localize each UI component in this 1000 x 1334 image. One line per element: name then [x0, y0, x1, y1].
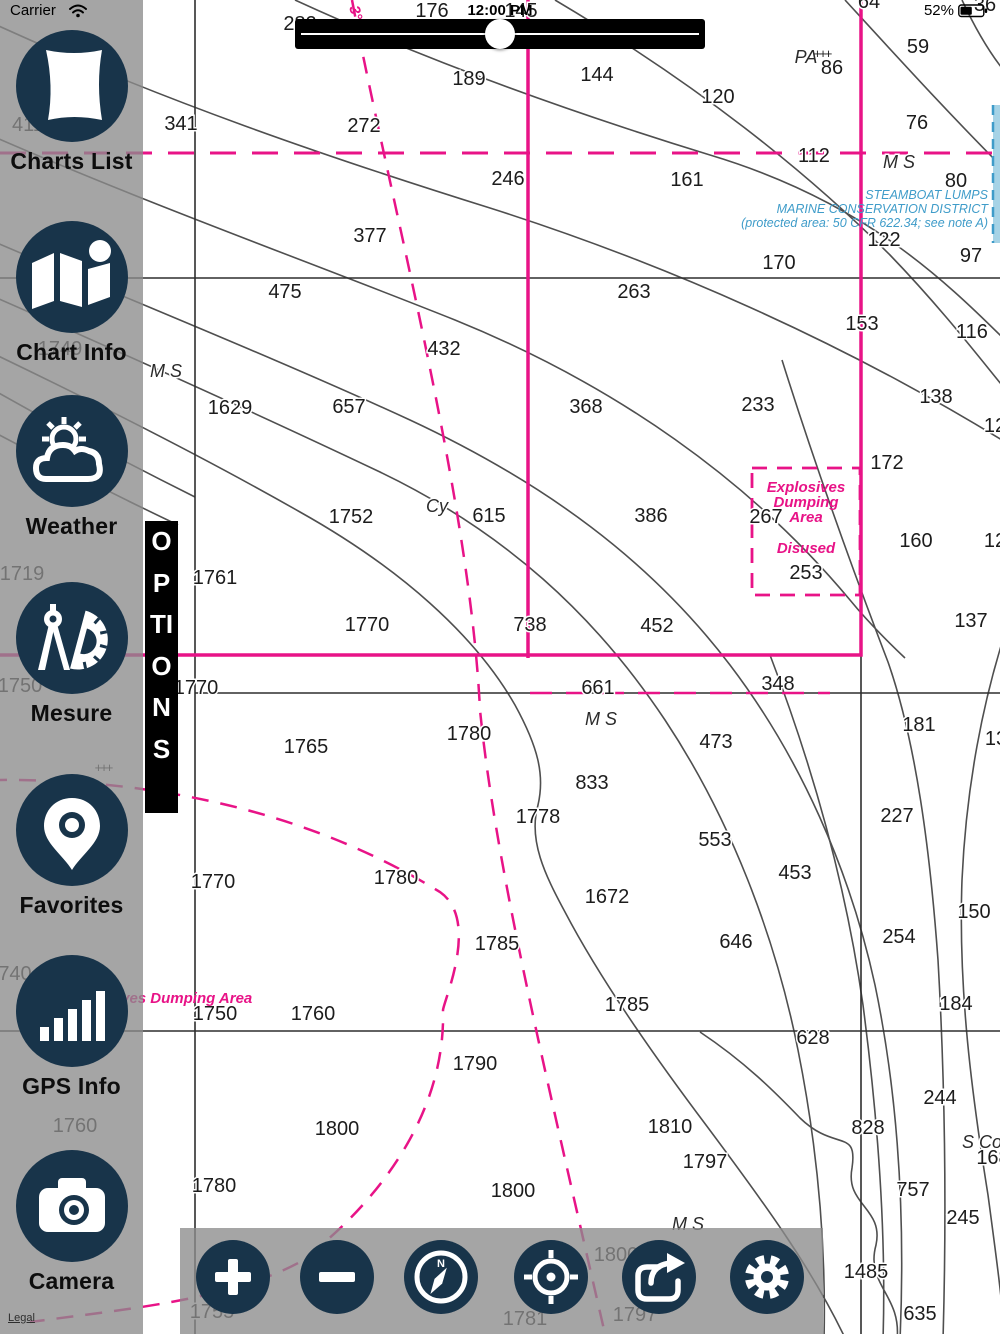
- svg-text:432: 432: [427, 338, 460, 360]
- sidebar-item-label: GPS Info: [0, 1073, 143, 1100]
- svg-text:615: 615: [472, 505, 505, 527]
- svg-text:Area: Area: [788, 509, 822, 526]
- sidebar-item-label: Chart Info: [0, 339, 143, 366]
- share-arrow-icon: [622, 1240, 696, 1314]
- svg-text:59: 59: [907, 36, 929, 58]
- camera-button[interactable]: [16, 1150, 128, 1262]
- svg-text:(protected area: 50 CFR 622.34: (protected area: 50 CFR 622.34; see note…: [741, 216, 988, 230]
- svg-text:757: 757: [896, 1179, 929, 1201]
- svg-text:144: 144: [580, 64, 613, 86]
- status-bar: Carrier 12:00 PM 52%: [0, 0, 1000, 22]
- svg-text:Disused: Disused: [777, 540, 836, 557]
- svg-text:377: 377: [353, 225, 386, 247]
- svg-text:STEAMBOAT LUMPS: STEAMBOAT LUMPS: [865, 188, 988, 202]
- slider-knob[interactable]: [485, 19, 515, 49]
- sidebar-item-gps-info[interactable]: GPS Info: [0, 955, 143, 1100]
- sidebar-item-chart-info[interactable]: Chart Info: [0, 221, 143, 366]
- svg-text:MARINE CONSERVATION DISTRICT: MARINE CONSERVATION DISTRICT: [777, 202, 990, 216]
- svg-text:1790: 1790: [453, 1053, 498, 1075]
- battery-icon: [958, 4, 988, 18]
- share-button[interactable]: [622, 1240, 696, 1314]
- svg-text:628: 628: [796, 1027, 829, 1049]
- weather-button[interactable]: [16, 395, 128, 507]
- svg-text:181: 181: [902, 714, 935, 736]
- svg-text:76: 76: [906, 112, 928, 134]
- mesure-button[interactable]: [16, 582, 128, 694]
- svg-text:12: 12: [984, 530, 1000, 552]
- sidebar-item-label: Camera: [0, 1268, 143, 1295]
- chart-scroll-icon: [16, 30, 128, 142]
- svg-text:150: 150: [957, 901, 990, 923]
- svg-text:738: 738: [513, 614, 546, 636]
- target-icon: [514, 1240, 588, 1314]
- zoom-out-button[interactable]: [300, 1240, 374, 1314]
- svg-text:122: 122: [867, 229, 900, 251]
- sidebar-item-favorites[interactable]: Favorites: [0, 774, 143, 919]
- svg-text:263: 263: [617, 281, 650, 303]
- sidebar-item-charts-list[interactable]: Charts List: [0, 30, 143, 175]
- plus-icon: [196, 1240, 270, 1314]
- svg-text:Cy: Cy: [426, 496, 449, 516]
- svg-text:1797: 1797: [683, 1151, 728, 1173]
- svg-text:661: 661: [581, 677, 614, 699]
- svg-text:1778: 1778: [516, 806, 561, 828]
- gps-info-button[interactable]: [16, 955, 128, 1067]
- svg-text:137: 137: [954, 610, 987, 632]
- svg-text:553: 553: [698, 829, 731, 851]
- svg-text:1761: 1761: [193, 567, 238, 589]
- svg-text:348: 348: [761, 673, 794, 695]
- svg-text:112: 112: [798, 145, 830, 167]
- svg-text:M S: M S: [150, 361, 182, 381]
- svg-text:341: 341: [164, 113, 197, 135]
- compass-protractor-icon: [16, 582, 128, 694]
- chart-overlay-slider[interactable]: [295, 19, 705, 49]
- locate-button[interactable]: [514, 1240, 588, 1314]
- sidebar-item-label: Mesure: [0, 700, 143, 727]
- signal-bars-icon: [16, 955, 128, 1067]
- svg-text:646: 646: [719, 931, 752, 953]
- svg-text:161: 161: [670, 169, 703, 191]
- svg-text:1780: 1780: [192, 1175, 237, 1197]
- svg-text:M S: M S: [883, 152, 915, 172]
- svg-text:1760: 1760: [291, 1003, 336, 1025]
- svg-text:120: 120: [701, 86, 734, 108]
- svg-text:386: 386: [634, 505, 667, 527]
- camera-icon: [16, 1150, 128, 1262]
- sidebar-item-mesure[interactable]: Mesure: [0, 582, 143, 727]
- svg-text:116: 116: [956, 321, 988, 343]
- legal-link[interactable]: Legal: [8, 1312, 35, 1324]
- svg-text:1770: 1770: [191, 871, 236, 893]
- svg-text:657: 657: [332, 396, 365, 418]
- svg-text:475: 475: [268, 281, 301, 303]
- svg-text:833: 833: [575, 772, 608, 794]
- svg-text:1770: 1770: [345, 614, 390, 636]
- svg-text:1785: 1785: [605, 994, 650, 1016]
- svg-text:828: 828: [851, 1117, 884, 1139]
- clock-label: 12:00 PM: [0, 2, 1000, 19]
- svg-text:1752: 1752: [329, 506, 374, 528]
- svg-text:1780: 1780: [374, 867, 419, 889]
- svg-text:1672: 1672: [585, 886, 630, 908]
- settings-button[interactable]: [730, 1240, 804, 1314]
- charts-list-button[interactable]: [16, 30, 128, 142]
- compass-icon: N: [404, 1240, 478, 1314]
- svg-text:253: 253: [789, 562, 822, 584]
- svg-text:473: 473: [699, 731, 732, 753]
- svg-text:97: 97: [960, 245, 982, 267]
- svg-text:1765: 1765: [284, 736, 329, 758]
- svg-text:1629: 1629: [208, 397, 253, 419]
- svg-text:160: 160: [899, 530, 932, 552]
- svg-text:12: 12: [984, 415, 1000, 437]
- svg-text:170: 170: [762, 252, 795, 274]
- sidebar-item-label: Charts List: [0, 148, 143, 175]
- bottom-toolbar: N: [180, 1228, 823, 1334]
- favorites-button[interactable]: [16, 774, 128, 886]
- svg-text:368: 368: [569, 396, 602, 418]
- svg-text:453: 453: [778, 862, 811, 884]
- svg-text:1770: 1770: [174, 677, 219, 699]
- svg-text:1810: 1810: [648, 1116, 693, 1138]
- zoom-in-button[interactable]: [196, 1240, 270, 1314]
- svg-text:153: 153: [845, 313, 878, 335]
- minus-icon: [300, 1240, 374, 1314]
- map-pin-icon: [16, 774, 128, 886]
- svg-text:272: 272: [347, 115, 380, 137]
- svg-text:452: 452: [640, 615, 673, 637]
- svg-text:172: 172: [870, 452, 903, 474]
- battery-percent-label: 52%: [924, 2, 954, 19]
- gear-icon: [730, 1240, 804, 1314]
- svg-text:244: 244: [923, 1087, 956, 1109]
- sidebar-item-label: Weather: [0, 513, 143, 540]
- sun-cloud-icon: [16, 395, 128, 507]
- svg-text:635: 635: [903, 1303, 936, 1325]
- chart-info-button[interactable]: [16, 221, 128, 333]
- compass-button[interactable]: N: [404, 1240, 478, 1314]
- svg-text:233: 233: [741, 394, 774, 416]
- svg-text:1780: 1780: [447, 723, 492, 745]
- svg-text:M S: M S: [585, 709, 617, 729]
- options-tab[interactable]: OPTIONS: [145, 521, 178, 813]
- svg-text:184: 184: [939, 993, 972, 1015]
- svg-text:1800: 1800: [315, 1118, 360, 1140]
- sidebar-item-weather[interactable]: Weather: [0, 395, 143, 540]
- sidebar-item-label: Favorites: [0, 892, 143, 919]
- svg-text:246: 246: [491, 168, 524, 190]
- folded-map-icon: [16, 221, 128, 333]
- svg-text:13: 13: [985, 728, 1000, 750]
- svg-text:1485: 1485: [844, 1261, 889, 1283]
- svg-text:189: 189: [452, 68, 485, 90]
- sidebar-item-camera[interactable]: Camera: [0, 1150, 143, 1295]
- svg-text:245: 245: [946, 1207, 979, 1229]
- navionics-chart-app: 2821761456436591441891208641134127276112…: [0, 0, 1000, 1334]
- svg-text:S Co: S Co: [962, 1132, 1000, 1152]
- svg-text:138: 138: [919, 386, 952, 408]
- svg-text:1785: 1785: [475, 933, 520, 955]
- svg-text:227: 227: [880, 805, 913, 827]
- svg-text:N: N: [437, 1258, 445, 1270]
- svg-text:254: 254: [882, 926, 915, 948]
- svg-text:+++: +++: [814, 46, 832, 61]
- svg-text:1800: 1800: [491, 1180, 536, 1202]
